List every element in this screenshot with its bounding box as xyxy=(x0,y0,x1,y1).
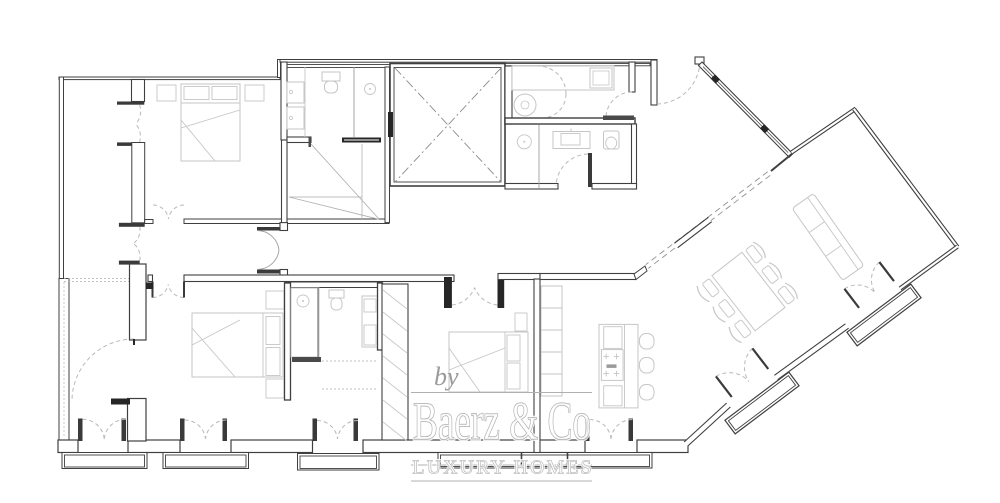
svg-text:Baerz & Co: Baerz & Co xyxy=(413,391,591,451)
svg-text:by: by xyxy=(434,362,459,391)
